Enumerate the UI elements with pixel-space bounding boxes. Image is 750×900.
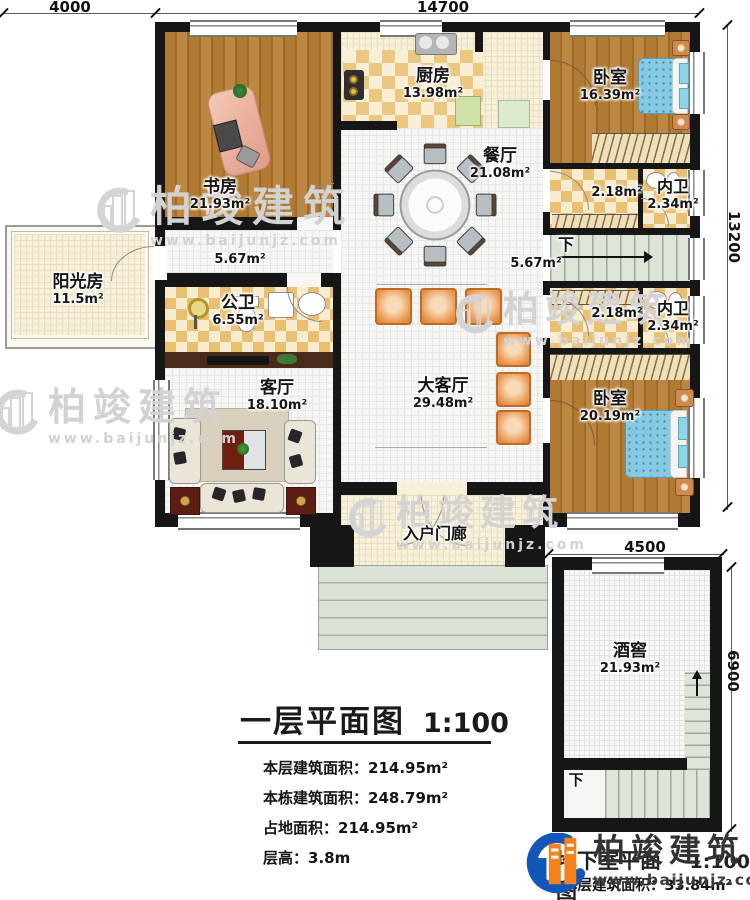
label-basement-stair-down: 下: [558, 772, 594, 790]
room-label-porch: 入户门廊: [373, 525, 497, 544]
brand-logo-text: 柏竣建筑: [593, 833, 750, 868]
nightstand-bedroom2: [675, 389, 694, 407]
wall-kitchen-stub-h: [341, 121, 397, 130]
wall-rightcol-5: [543, 338, 550, 398]
door-gap-pubbath: [287, 273, 321, 287]
floor-plan-canvas: 4000 14700 13200 4500 6900: [0, 0, 750, 900]
door-gap-porch: [397, 482, 467, 495]
wall-bedroom1-bottom: [550, 163, 690, 169]
wall-rightcol-1: [543, 32, 550, 60]
room-label-study: 书房 21.93m²: [160, 177, 280, 212]
door-gap-sunroom: [153, 246, 167, 280]
sofa-pillow: [173, 451, 187, 465]
door-gap-study: [297, 217, 333, 230]
window-living-left: [153, 380, 170, 480]
living-sofa-right: [284, 420, 316, 484]
nightstand-bedroom1: [672, 114, 690, 130]
wall-greathall-bottom-b: [467, 482, 550, 495]
basement-wall-inner: [552, 758, 687, 770]
wall-closet2-bottom: [550, 348, 690, 354]
wall-study-right: [333, 32, 341, 217]
bed-pillow-bedroom1: [679, 63, 689, 84]
room-label-cellar: 酒窖 21.93m²: [570, 641, 690, 676]
label-hall-left-area: 5.67m²: [200, 252, 280, 267]
window-bedroom1-right: [688, 52, 705, 114]
wall-kitchen-stub-v: [475, 32, 483, 52]
brand-logo-icon: [525, 833, 587, 895]
living-side-table: [286, 487, 316, 515]
room-label-bath2: 内卫 2.34m²: [629, 300, 717, 334]
wardrobe-bedroom2: [550, 354, 690, 382]
sofa-pillow: [232, 489, 246, 503]
bed-pillow-bedroom1: [679, 88, 689, 109]
stat-building-area: 本栋建筑面积：248.79m²: [263, 787, 448, 808]
room-label-dining: 餐厅 21.08m²: [440, 146, 560, 181]
main-title-text: 一层平面图: [240, 696, 405, 741]
nightstand-bedroom1: [672, 40, 690, 56]
living-table-plant: [237, 443, 249, 455]
window-study-top: [190, 20, 297, 37]
greathall-chair: [465, 288, 502, 325]
living-console-plant: [277, 354, 297, 364]
brand-logo-url: www.baijunjz.com: [593, 871, 750, 889]
wall-stairs-bottom: [550, 281, 690, 288]
kitchen-stove-burner2: [349, 87, 358, 96]
closet1-rack: [552, 214, 638, 229]
basement-arrow-line: [696, 678, 698, 696]
room-label-bath1: 内卫 2.34m²: [629, 178, 717, 212]
room-label-kitchen: 厨房 13.98m²: [373, 66, 493, 101]
room-label-bedroom1: 卧室 16.39m²: [550, 68, 670, 103]
dining-zone-line: [377, 284, 487, 285]
window-bedroom2-bottom: [567, 512, 678, 530]
entry-steps: [318, 565, 548, 650]
greathall-chair: [496, 332, 531, 367]
wall-rightcol-4: [543, 281, 550, 295]
main-title: 一层平面图 1:100: [240, 696, 509, 741]
room-label-sunroom: 阳光房 11.5m²: [18, 272, 138, 307]
stairs-main-arrow-head: [644, 251, 653, 263]
dim-top-main: 14700: [398, 0, 488, 16]
main-title-scale: 1:100: [423, 708, 509, 739]
label-stair-down: 下: [548, 236, 584, 255]
greathall-chair: [496, 410, 531, 445]
stat-footprint-area: 占地面积：214.95m²: [263, 817, 448, 838]
kitchen-stove-burner: [349, 75, 358, 84]
room-label-bedroom2: 卧室 20.19m²: [550, 389, 670, 424]
wall-pubbath-top-a: [165, 273, 287, 287]
window-bedroom2-right: [688, 398, 705, 478]
basement-wall-bottom: [552, 818, 722, 832]
bed-pillow-bedroom2: [678, 445, 688, 468]
greathall-zone-line: [375, 447, 487, 448]
watermark-logo-icon: [0, 388, 40, 446]
wall-closet1-bottom: [550, 228, 690, 235]
basement-wall-left: [552, 557, 564, 832]
basement-wall-right: [710, 557, 722, 832]
dim-basement-width: 4500: [605, 538, 685, 556]
living-tv: [207, 356, 269, 365]
wardrobe-bedroom1: [592, 133, 690, 165]
study-plant: [233, 84, 247, 98]
main-title-underline: [238, 741, 491, 744]
sofa-pillow: [252, 487, 266, 501]
brand-logo: 柏竣建筑 www.baijunjz.com: [525, 833, 750, 895]
dim-basement-height: 6900: [724, 634, 742, 708]
stats-block: 本层建筑面积：214.95m² 本栋建筑面积：248.79m² 占地面积：214…: [263, 757, 448, 877]
greathall-chair: [375, 288, 412, 325]
room-label-greathall: 大客厅 29.48m²: [383, 376, 503, 411]
wall-rightcol-6: [543, 443, 550, 513]
wall-rightcol-3: [543, 212, 550, 235]
kitchen-sink-basin: [419, 36, 432, 49]
room-label-pubbath: 公卫 6.55m²: [178, 293, 298, 328]
wall-greathall-bottom-a: [333, 482, 397, 495]
stat-storey-height: 层高：3.8m: [263, 847, 448, 868]
bed-pillow-bedroom2: [678, 417, 688, 440]
porch-column-right: [505, 525, 545, 567]
living-side-table: [170, 487, 200, 515]
wall-pubbath-top-b: [321, 273, 341, 287]
window-cellar-top: [592, 557, 664, 574]
greathall-table: [420, 288, 457, 325]
window-stairs-right: [688, 238, 705, 280]
basement-stairs-lower: [605, 770, 710, 818]
stat-floor-area: 本层建筑面积：214.95m²: [263, 757, 448, 778]
kitchen-sink-basin2: [436, 36, 449, 49]
dim-top-left: 4000: [30, 0, 110, 16]
basement-arrow-head: [692, 670, 702, 679]
porch-column-left: [310, 525, 354, 567]
kitchen-fridge: [498, 100, 530, 128]
nightstand-bedroom2: [675, 478, 694, 496]
dim-right-main: 13200: [725, 195, 743, 279]
window-bedroom1-top: [570, 20, 665, 37]
room-label-living: 客厅 18.10m²: [217, 378, 337, 413]
label-hall-right-area: 5.67m²: [496, 256, 576, 271]
